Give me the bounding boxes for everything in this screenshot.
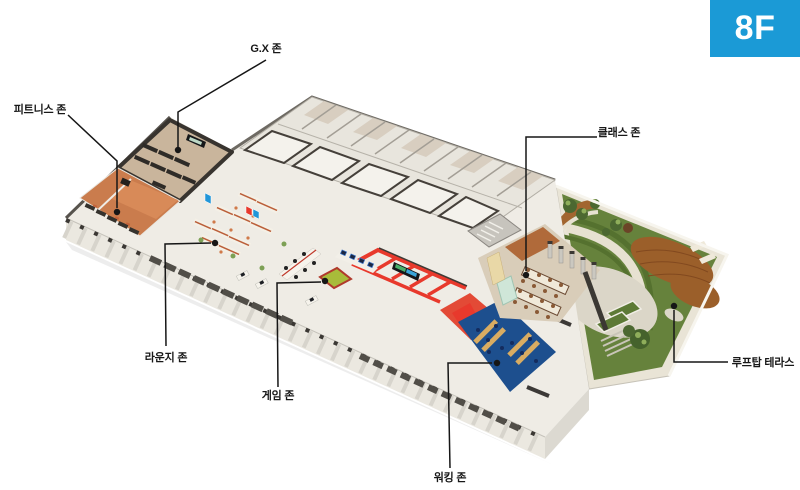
zone-label-lounge[interactable]: 라운지 존 — [145, 349, 188, 365]
zone-label-working[interactable]: 워킹 존 — [434, 469, 467, 485]
dot-working — [494, 360, 500, 366]
floor-plan-illustration — [0, 0, 800, 490]
dot-rooftop — [671, 303, 677, 309]
dot-fitness — [114, 209, 120, 215]
dot-gx — [175, 147, 181, 153]
dot-game — [322, 278, 328, 284]
floor-badge[interactable]: 8F — [710, 0, 800, 57]
zone-label-class[interactable]: 클래스 존 — [598, 124, 641, 140]
dot-class — [523, 272, 529, 278]
zone-label-game[interactable]: 게임 존 — [262, 387, 295, 403]
dot-lounge — [212, 240, 218, 246]
floor-guide-page: G.X 존 피트니스 존 클래스 존 라운지 존 게임 존 워킹 존 루프탑 테… — [0, 0, 800, 490]
zone-label-rooftop[interactable]: 루프탑 테라스 — [732, 354, 794, 370]
zone-label-fitness[interactable]: 피트니스 존 — [14, 101, 66, 117]
zone-label-gx[interactable]: G.X 존 — [250, 40, 281, 56]
